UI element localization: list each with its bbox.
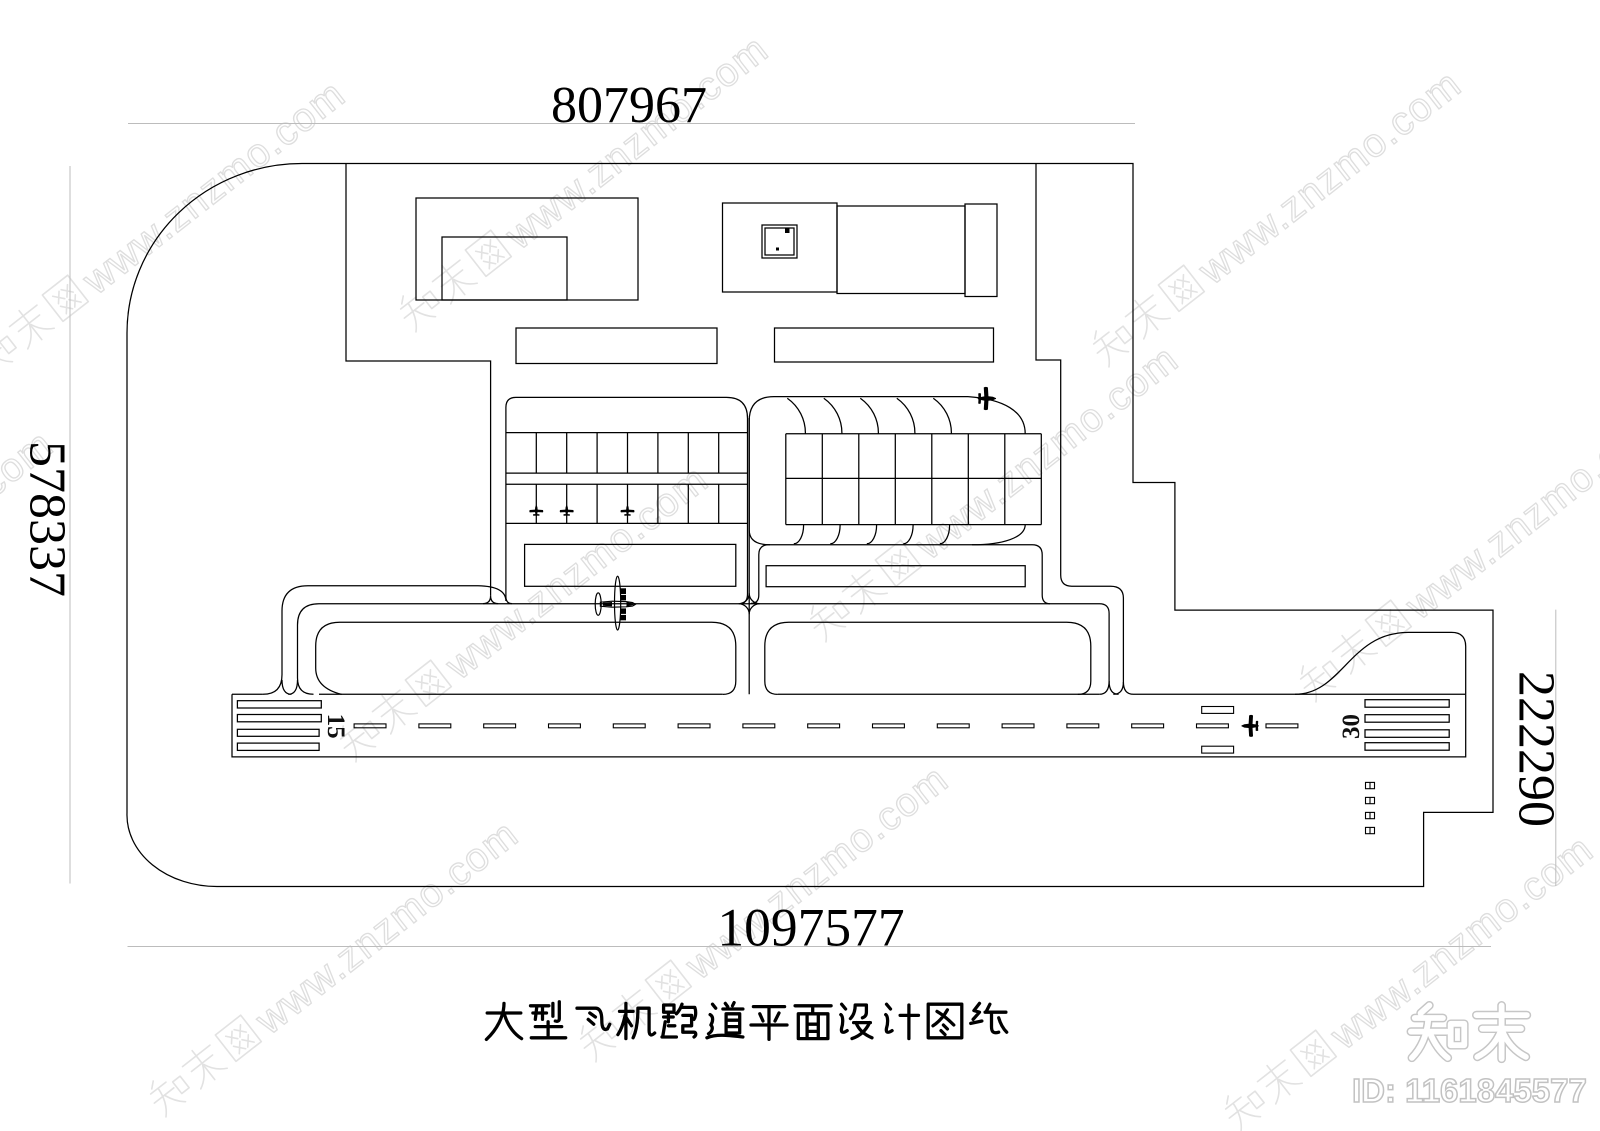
svg-text:30: 30 [1338,714,1365,739]
svg-text:222290: 222290 [1508,671,1565,827]
svg-text:1097577: 1097577 [717,898,904,958]
svg-text:578337: 578337 [19,441,76,597]
svg-text:ID: 1161845577: ID: 1161845577 [1352,1072,1587,1109]
svg-text:807967: 807967 [551,77,707,134]
svg-text:15: 15 [322,714,349,739]
